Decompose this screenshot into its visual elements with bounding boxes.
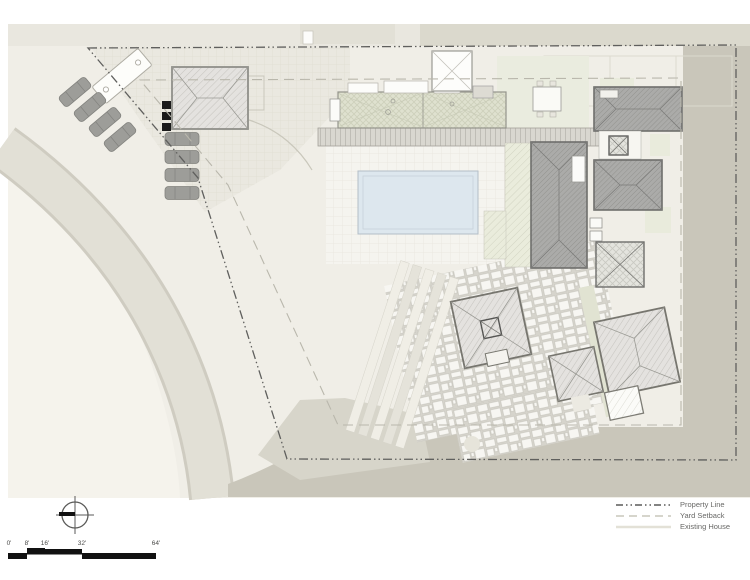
site-plan-sheet: 0' 8' 16' 32' 64' Property Line Yard Set… [0, 0, 750, 580]
southeast-house [594, 307, 680, 396]
white-patio-square [604, 386, 643, 420]
legend-label-property-line: Property Line [680, 500, 725, 510]
yard-setback-sample-icon [616, 512, 671, 520]
swimming-pool [358, 171, 478, 234]
scale-label-8: 8' [25, 540, 30, 547]
east-wing-south [594, 160, 662, 210]
legend-row-property-line: Property Line [616, 500, 750, 510]
legend-row-existing-house: Existing House [616, 522, 750, 532]
scale-label-0: 0' [7, 540, 12, 547]
legend-label-yard-setback: Yard Setback [680, 511, 724, 521]
property-line-sample-icon [616, 501, 671, 509]
small-structure [303, 31, 313, 44]
entry-canopy [432, 51, 472, 91]
existing-house-sample-icon [616, 523, 671, 531]
terrace-pavilion [596, 242, 644, 287]
legend: Property Line Yard Setback Existing Hous… [616, 500, 750, 532]
legend-label-existing-house: Existing House [680, 522, 730, 532]
site-plan-drawing: 0' 8' 16' 32' 64' [0, 0, 750, 580]
east-wing-north [594, 87, 682, 131]
courtyard-pavilion [599, 131, 641, 159]
scale-label-64: 64' [152, 540, 160, 547]
scale-label-16: 16' [41, 540, 49, 547]
scale-label-32: 32' [78, 540, 86, 547]
legend-row-yard-setback: Yard Setback [616, 511, 750, 521]
